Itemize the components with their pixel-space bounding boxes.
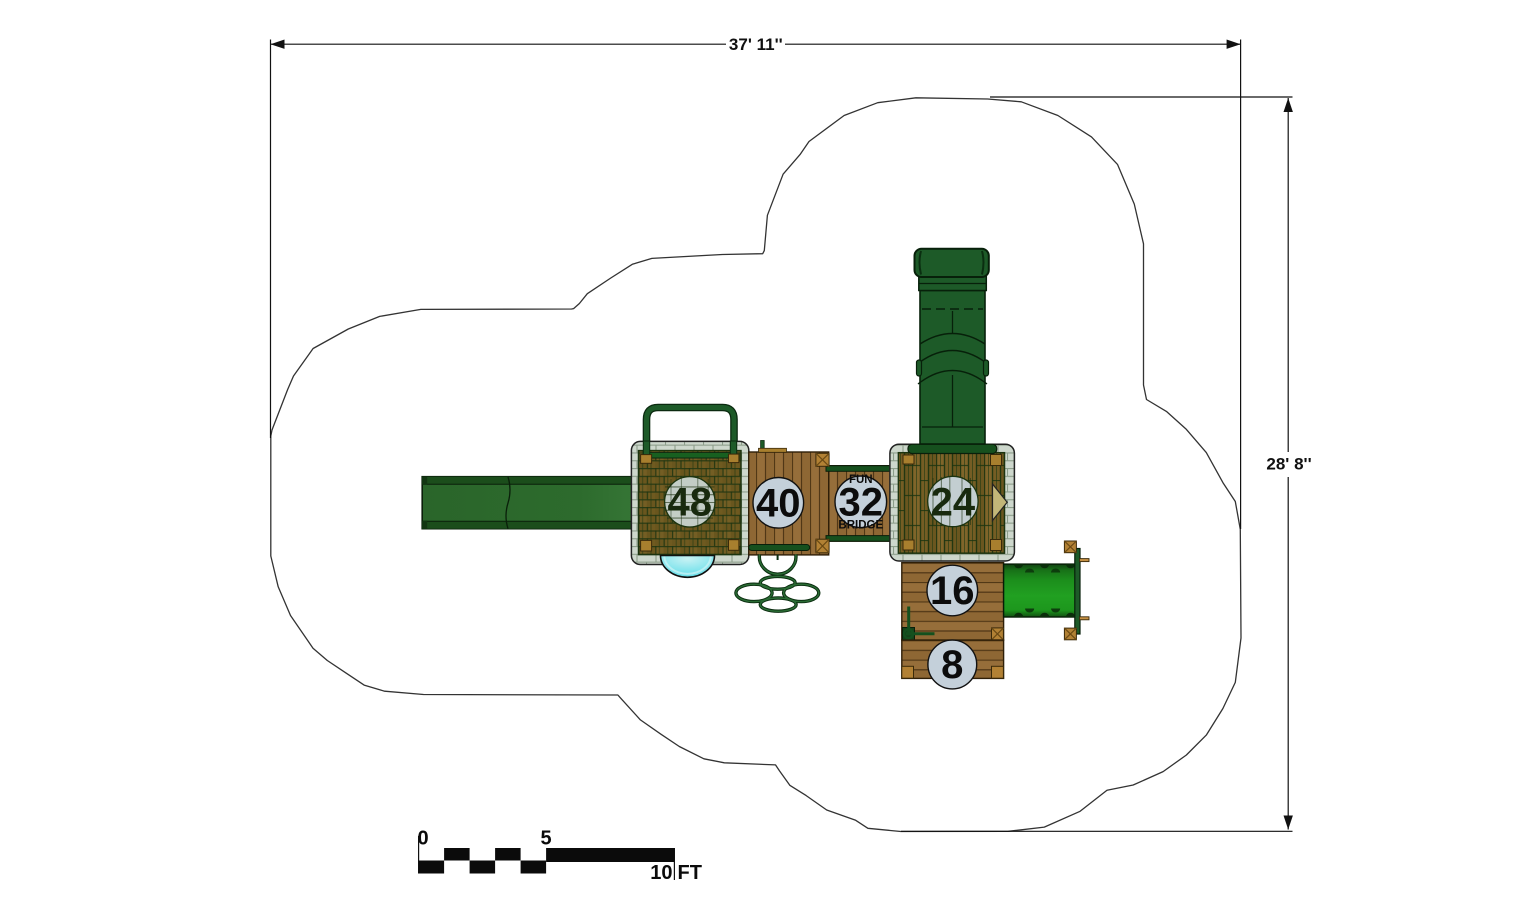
svg-text:8: 8 <box>941 643 963 687</box>
svg-text:FT: FT <box>678 862 702 884</box>
svg-text:10: 10 <box>650 862 672 884</box>
svg-text:32: 32 <box>839 481 884 525</box>
svg-text:0: 0 <box>418 828 429 850</box>
svg-text:28' 8'': 28' 8'' <box>1266 455 1311 474</box>
svg-text:FUN: FUN <box>849 474 873 486</box>
svg-text:37' 11'': 37' 11'' <box>729 35 783 54</box>
svg-text:5: 5 <box>541 828 552 850</box>
svg-text:40: 40 <box>756 481 801 525</box>
svg-text:24: 24 <box>931 480 976 524</box>
svg-text:16: 16 <box>930 569 975 613</box>
svg-text:BRIDGE: BRIDGE <box>838 520 883 532</box>
